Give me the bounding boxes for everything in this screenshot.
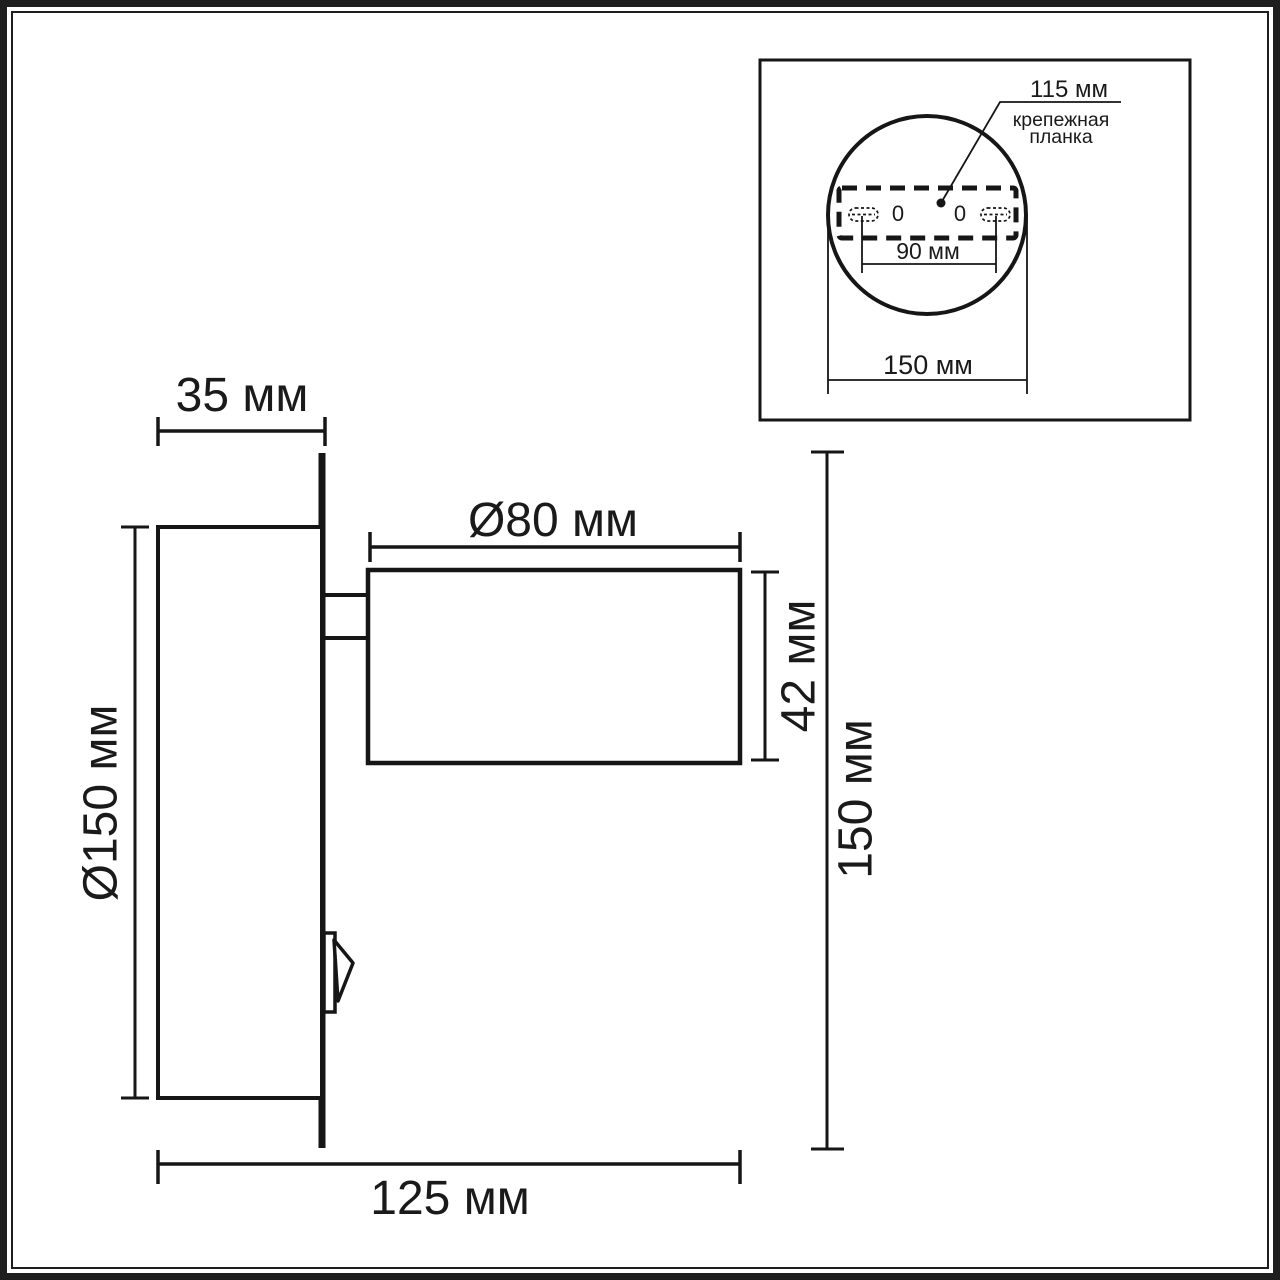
label-mounting-plate-name-line2: планка <box>1029 126 1093 148</box>
slot-zero-right: 0 <box>954 201 966 226</box>
inset-view <box>760 60 1190 420</box>
label-head-height: 42 мм <box>773 600 826 733</box>
slot-zero-left: 0 <box>892 201 904 226</box>
switch-lever <box>334 940 353 1001</box>
label-base-depth: 35 мм <box>176 369 309 422</box>
label-mounting-plate-width: 115 мм <box>1030 76 1108 103</box>
base-body-rect <box>158 527 322 1098</box>
drawing-page: 35 мм Ø150 мм Ø80 мм 42 мм 150 мм 125 мм <box>0 0 1280 1280</box>
label-head-diameter: Ø80 мм <box>468 494 638 547</box>
technical-drawing-canvas: 35 мм Ø150 мм Ø80 мм 42 мм 150 мм 125 мм <box>0 0 1280 1280</box>
label-hole-spacing: 90 мм <box>896 238 960 264</box>
label-overall-depth: 125 мм <box>370 1172 529 1225</box>
label-overall-height: 150 мм <box>830 719 883 878</box>
spot-head-rect <box>368 570 740 763</box>
label-base-diameter: Ø150 мм <box>75 705 128 902</box>
label-inset-diameter: 150 мм <box>883 350 973 380</box>
